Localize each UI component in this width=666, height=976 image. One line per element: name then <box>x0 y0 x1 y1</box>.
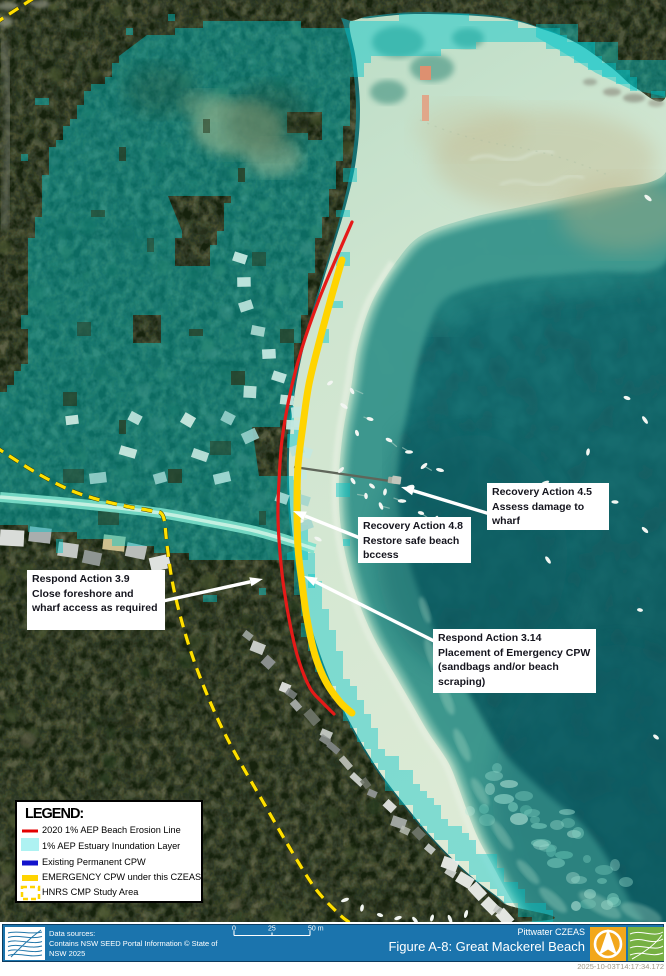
svg-text:0: 0 <box>232 926 236 933</box>
svg-text:25: 25 <box>268 926 276 933</box>
svg-text:50 m: 50 m <box>308 926 324 933</box>
